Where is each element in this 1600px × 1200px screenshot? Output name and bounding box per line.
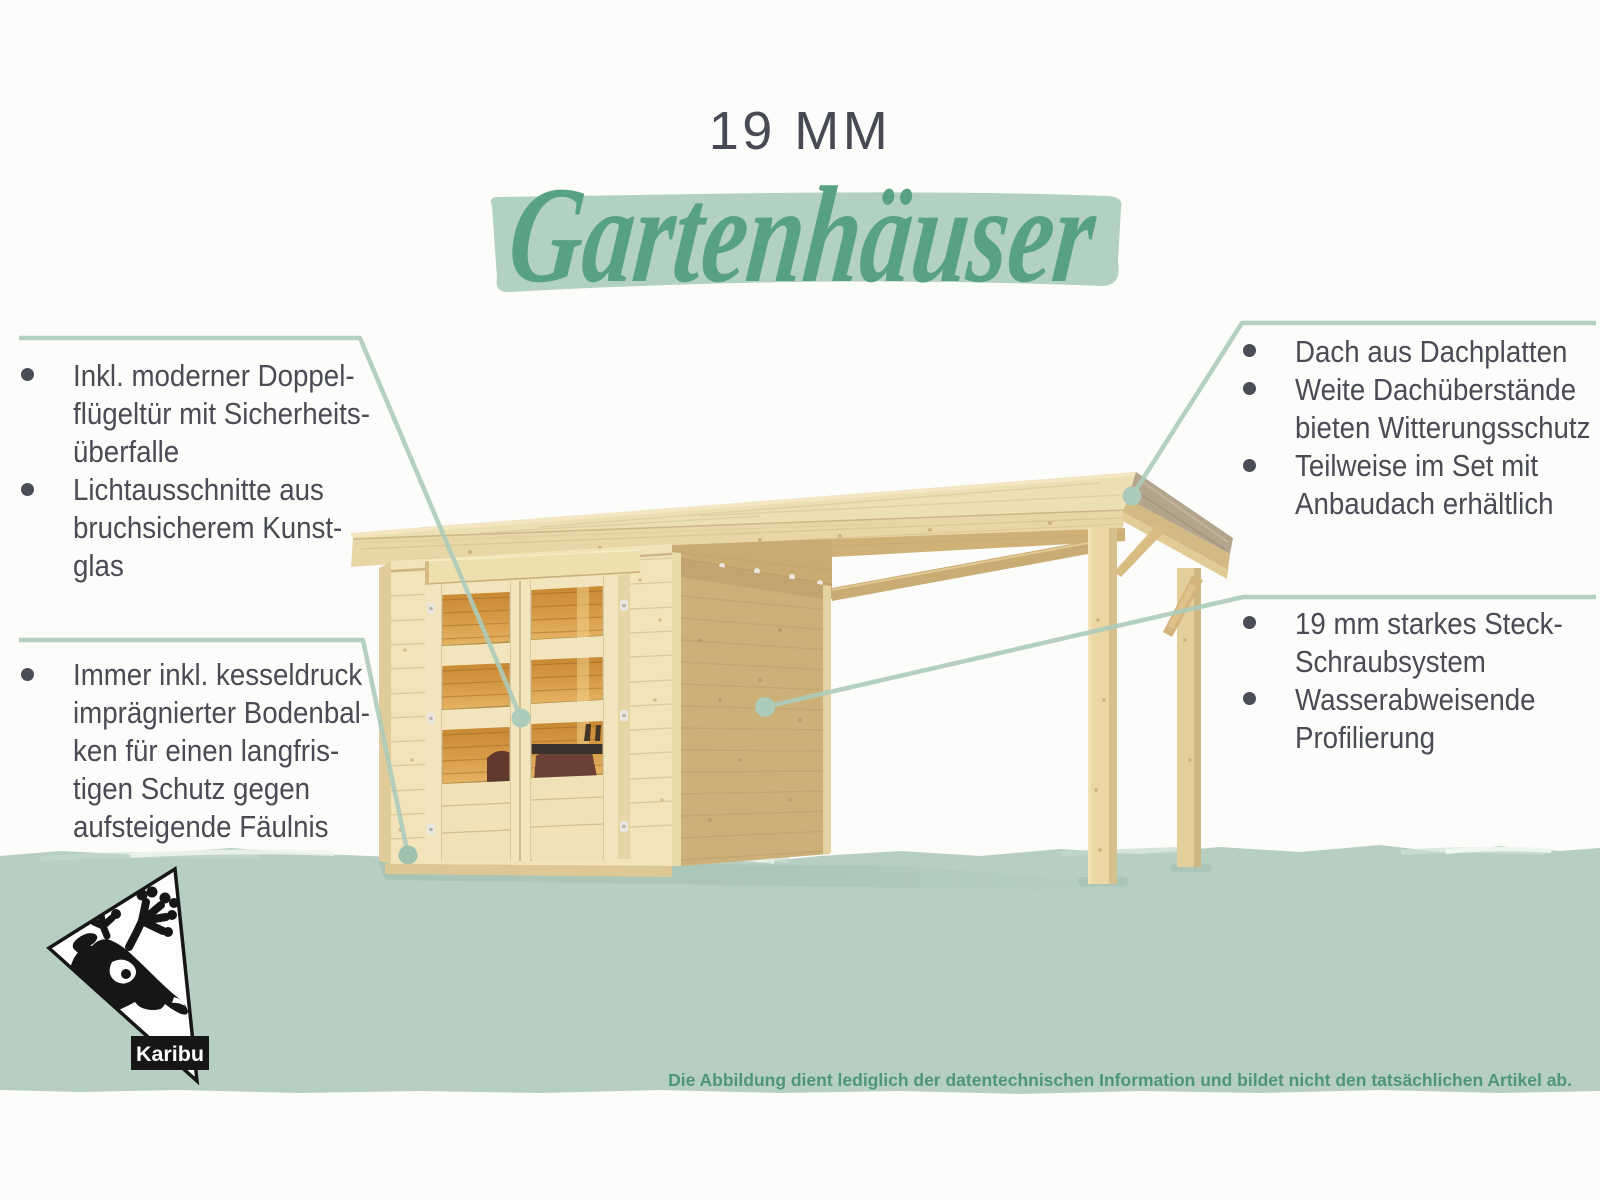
svg-text:Karibu: Karibu — [136, 1042, 204, 1066]
svg-text:Gartenhäuser: Gartenhäuser — [502, 158, 1103, 311]
